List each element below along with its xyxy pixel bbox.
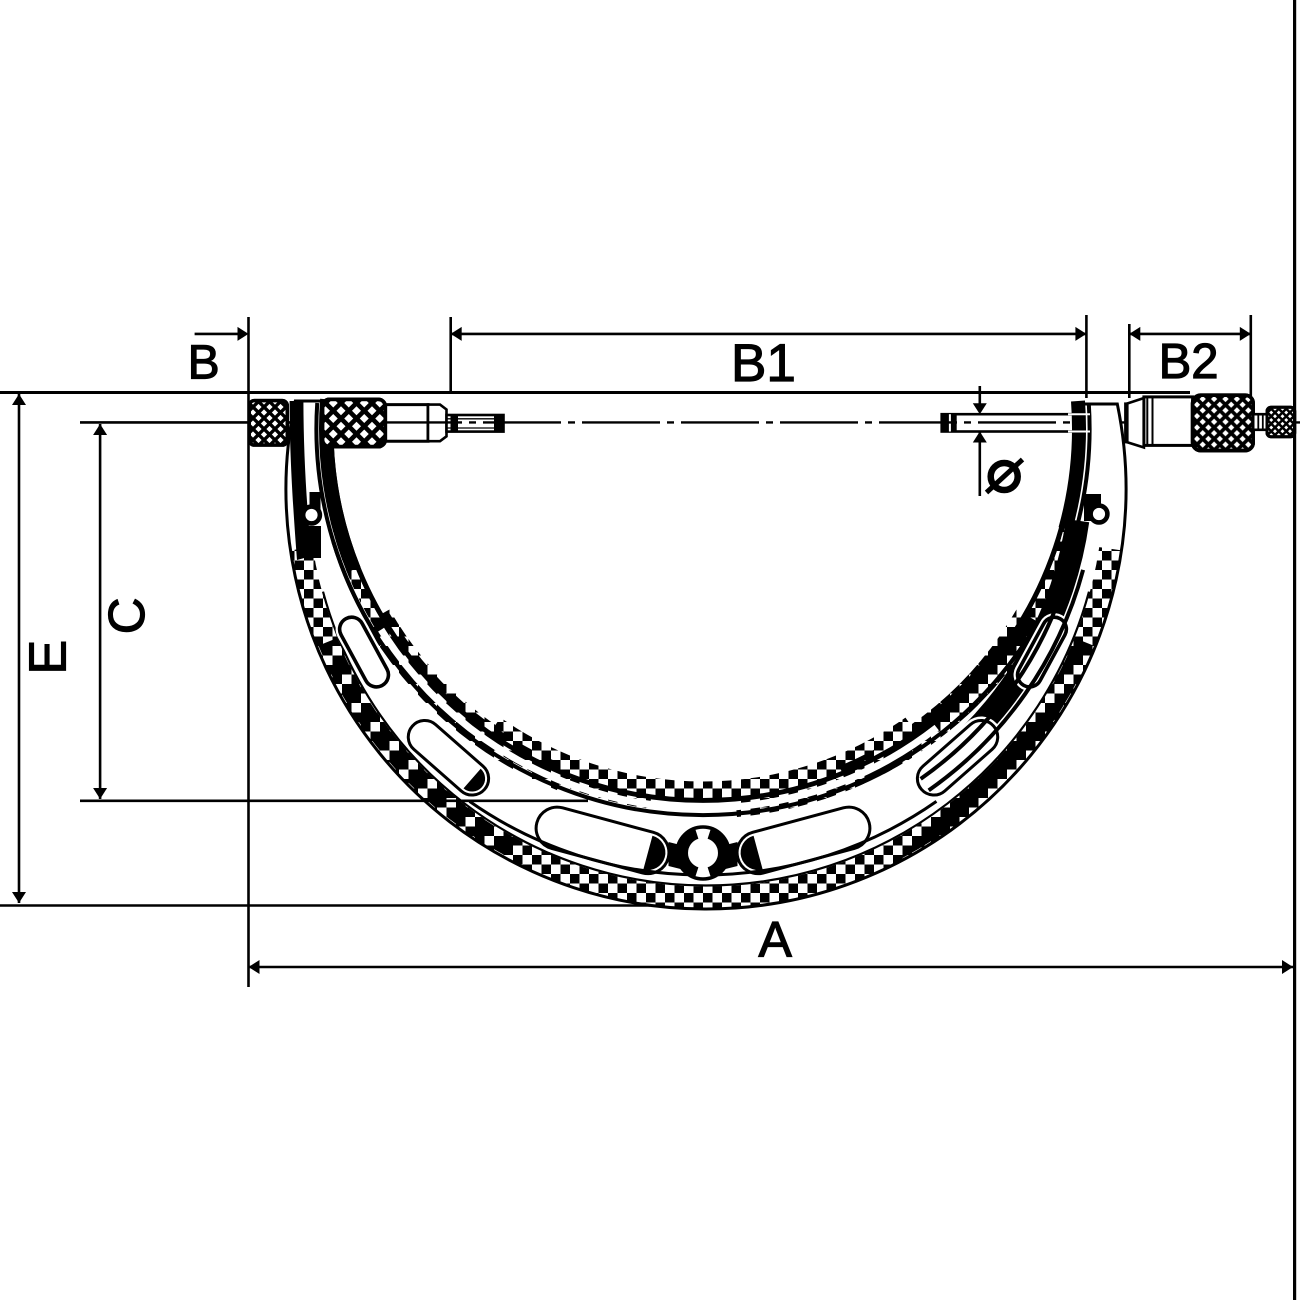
svg-text:B1: B1 <box>731 334 796 393</box>
svg-text:A: A <box>759 912 793 968</box>
svg-text:B2: B2 <box>1159 335 1219 389</box>
svg-text:C: C <box>98 597 155 634</box>
svg-text:B: B <box>188 336 220 389</box>
svg-text:E: E <box>20 640 78 675</box>
